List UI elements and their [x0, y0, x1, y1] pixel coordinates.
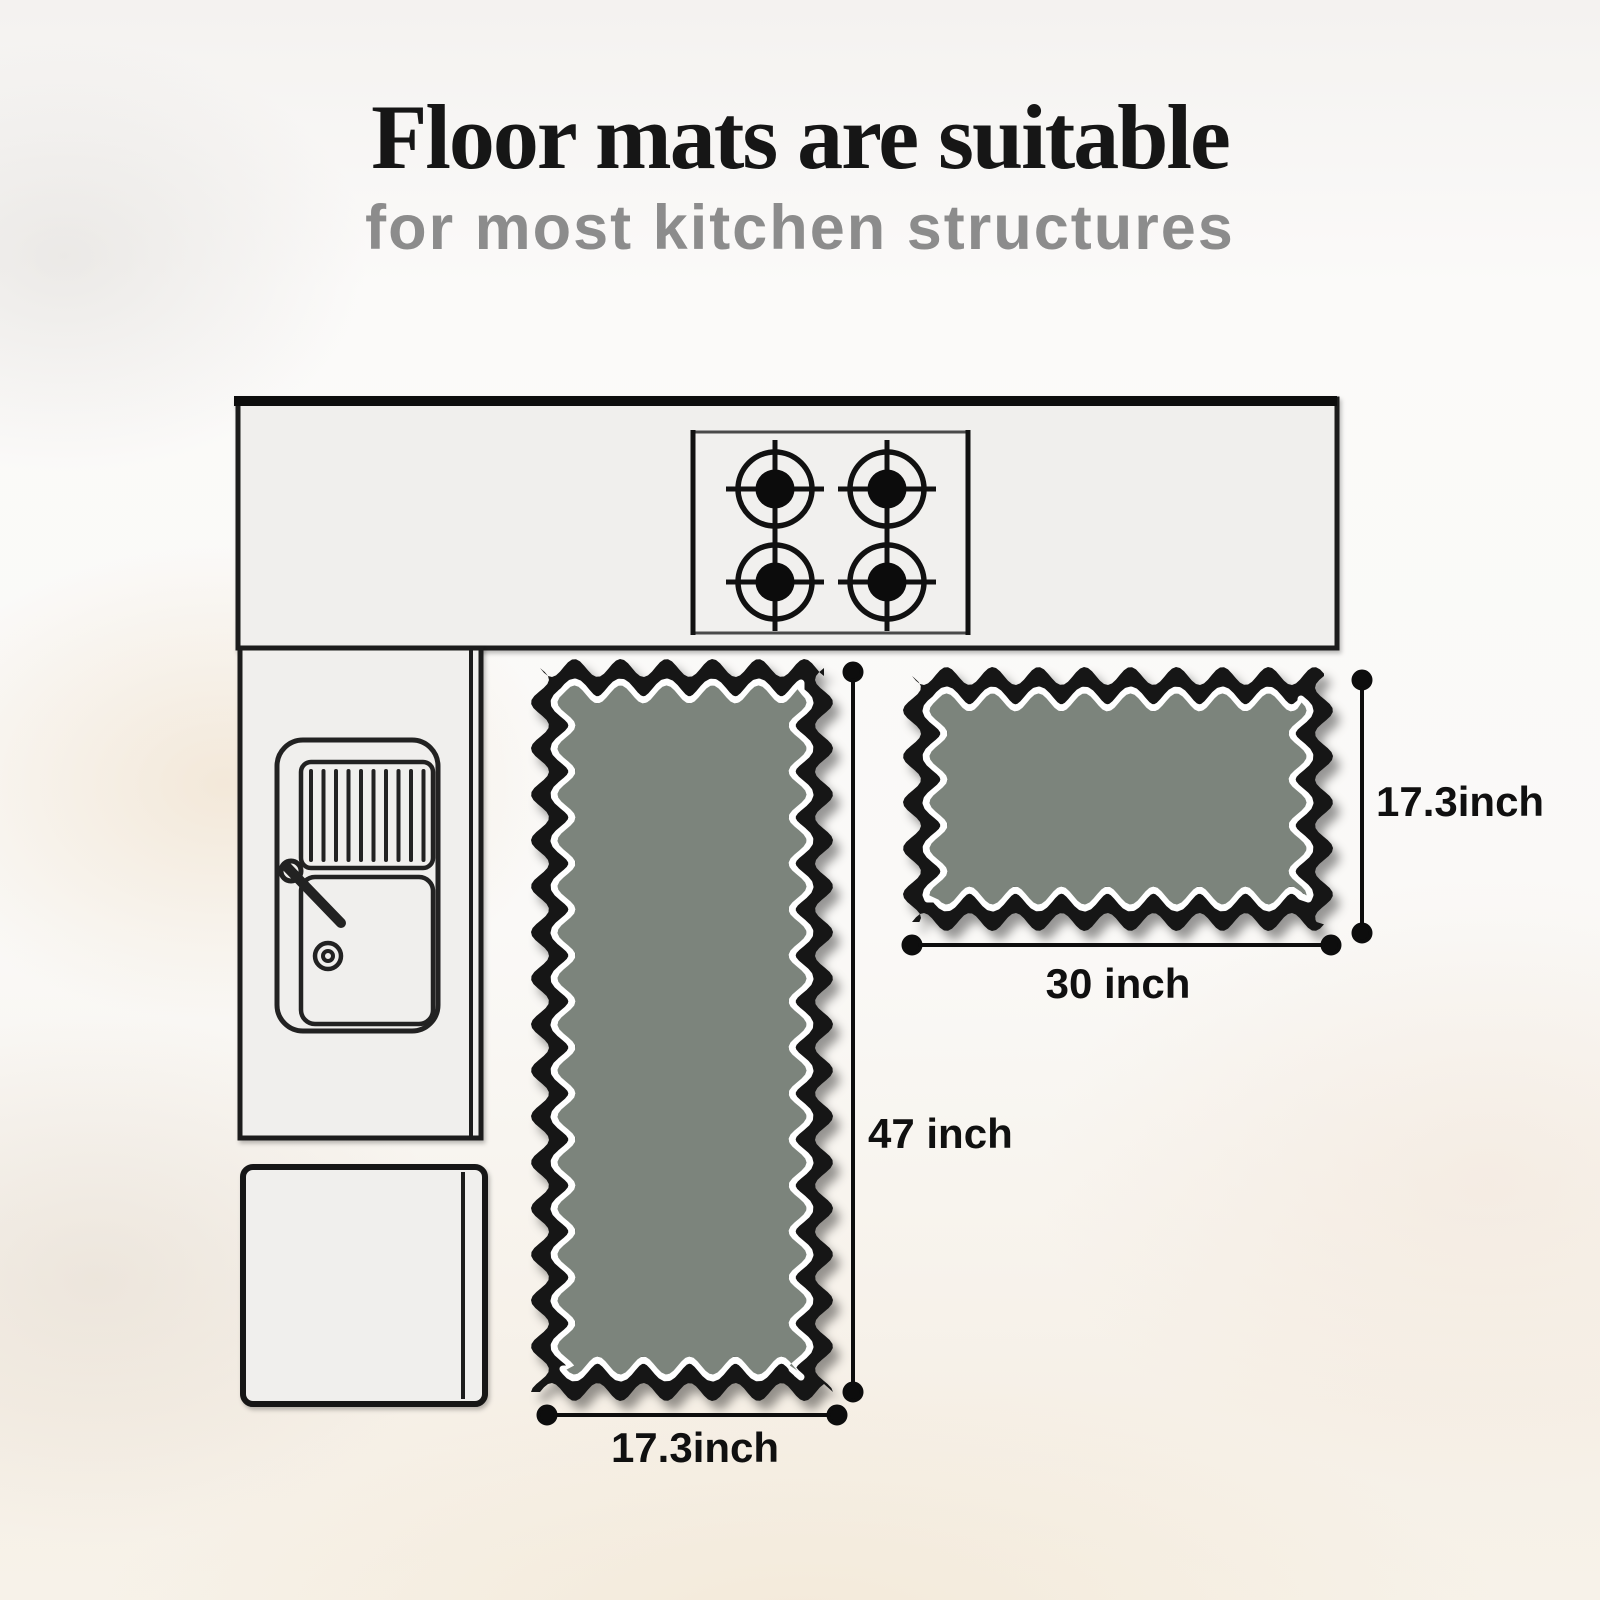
- fridge-outline-icon: [243, 1167, 485, 1404]
- dimension-line-runner-width: [539, 1407, 846, 1424]
- runner-height-label: 47 inch: [868, 1110, 1013, 1158]
- dimension-line-runner-height: [845, 664, 862, 1401]
- runner-width-label: 17.3inch: [560, 1424, 830, 1472]
- small-height-label: 17.3inch: [1376, 778, 1544, 826]
- infographic-canvas: Floor mats are suitable for most kitchen…: [0, 0, 1600, 1600]
- small-mat: [903, 667, 1333, 931]
- stove-burners-icon: [693, 430, 968, 635]
- runner-mat: [531, 659, 833, 1401]
- dimension-line-small-width: [904, 937, 1340, 954]
- kitchen-layout-diagram: [0, 0, 1600, 1600]
- small-width-label: 30 inch: [990, 960, 1246, 1008]
- dimension-line-small-height: [1354, 672, 1371, 942]
